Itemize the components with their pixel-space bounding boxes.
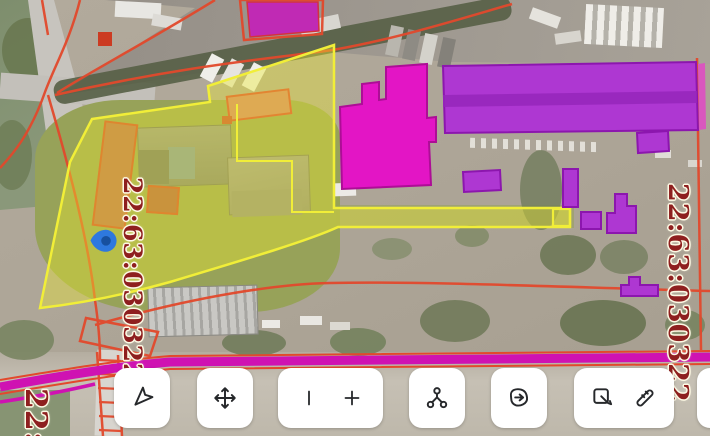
terrain-asphalt-yard [0,0,710,100]
polygon-select-button[interactable] [491,368,547,428]
select-edit-icon [590,385,616,411]
car [300,316,322,325]
tree-clump [2,18,54,82]
car [655,150,671,158]
truck [115,1,162,19]
clipped-toolbar-button[interactable] [697,368,710,428]
tree-clump [560,300,646,346]
navigate-button[interactable] [114,368,170,428]
cursor-arrow-icon [129,385,155,411]
truck [437,37,456,69]
truck [385,25,404,57]
tree-clump [0,120,32,190]
terrain-road-branch [0,73,156,110]
terrain-white-patch [334,183,356,197]
tree-clump [455,225,489,247]
tree-clump [420,300,490,342]
plus-icon [340,386,364,410]
trailer-row [584,4,664,48]
cadastral-number-label-bottom-partial: 22: [18,388,53,436]
location-marker-icon [88,226,122,256]
building-hangar [147,285,258,338]
location-marker[interactable] [88,226,122,256]
zoom-group-button[interactable] [278,368,383,428]
ruler-icon [632,385,658,411]
truck [299,14,341,36]
tree-clump [600,240,648,274]
vertical-bar-icon [297,386,321,410]
truck [529,7,561,29]
car [262,320,280,328]
tree-clump [330,328,386,356]
truck [402,29,421,61]
truck [419,33,438,65]
polygon-arrow-icon [506,385,532,411]
truck [151,13,183,30]
pan-button[interactable] [197,368,253,428]
car [330,322,350,330]
nodes-icon [424,385,450,411]
map-viewport[interactable]: 22:63:030322 22:63:030322 22: [0,0,710,436]
tree-clump [222,330,286,356]
tree-clump [0,320,54,360]
tree-clump [372,238,412,260]
truck [554,30,581,45]
truck [200,53,225,83]
move-icon [212,385,238,411]
car [688,160,702,167]
tree-clump [540,235,596,275]
nodes-button[interactable] [409,368,465,428]
debris-row [470,138,600,153]
cadastral-number-label-left: 22:63:030322 [118,177,147,381]
edit-group-button[interactable] [574,368,674,428]
truck-red [98,32,112,46]
